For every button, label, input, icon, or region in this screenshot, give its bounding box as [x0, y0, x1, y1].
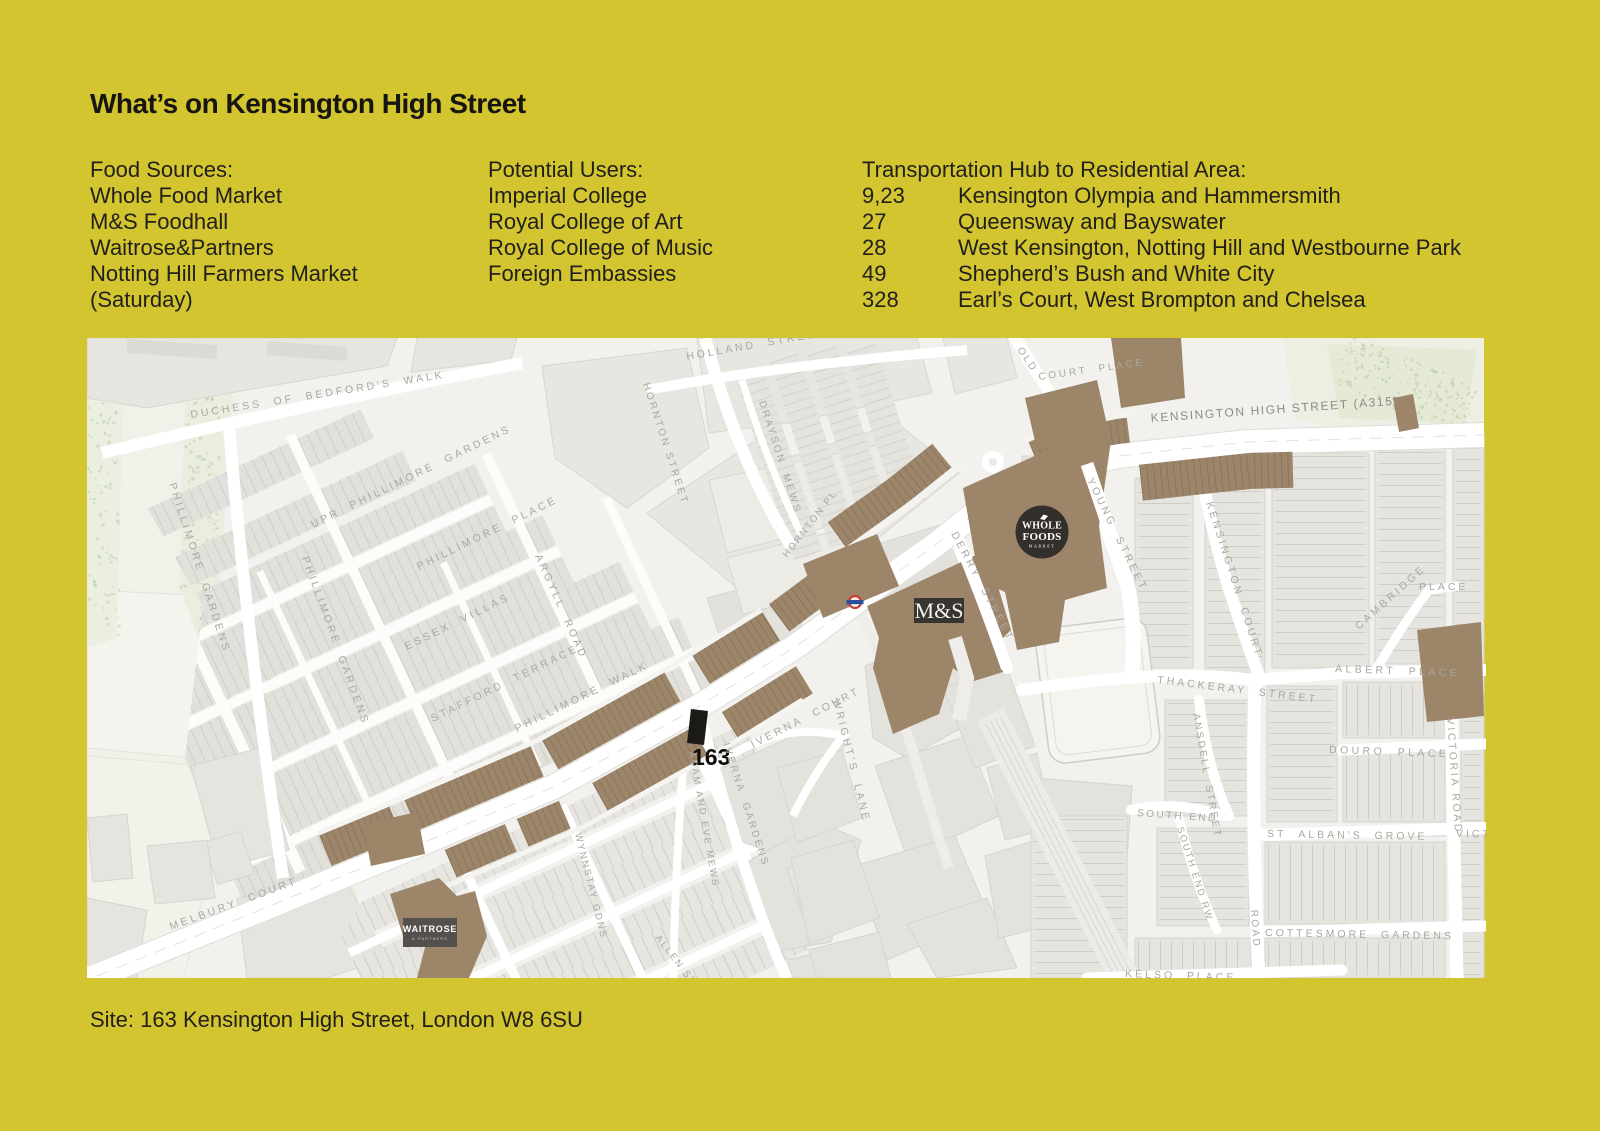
svg-text:WAITROSE: WAITROSE [403, 924, 457, 934]
svg-text:M&S: M&S [915, 598, 964, 623]
svg-text:WHOLE: WHOLE [1022, 521, 1062, 532]
svg-text:FOODS: FOODS [1023, 531, 1062, 543]
svg-text:& PARTNERS: & PARTNERS [412, 937, 448, 941]
svg-text:MARKET: MARKET [1029, 544, 1056, 549]
svg-text:PLACE: PLACE [1419, 581, 1468, 593]
svg-text:VICTO: VICTO [1456, 828, 1486, 841]
